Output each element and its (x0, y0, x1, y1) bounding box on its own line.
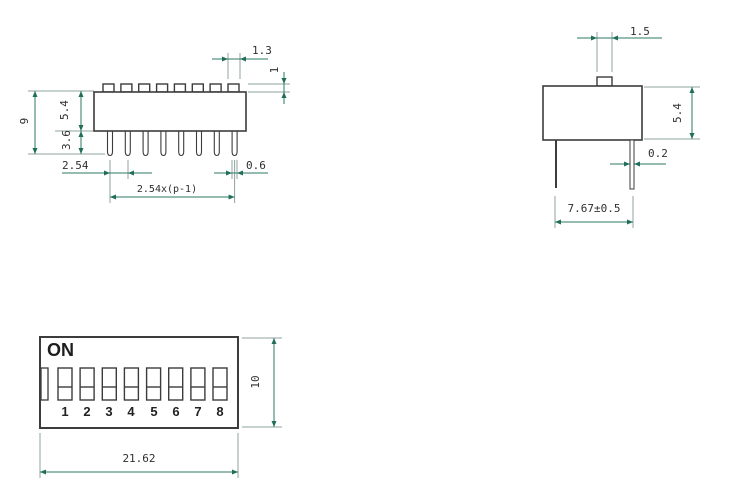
dim-end-body-height: 5.4 (672, 96, 684, 130)
dim-pin-width: 0.6 (246, 160, 266, 172)
switch-number-2: 2 (79, 404, 95, 419)
dim-top-length: 21.62 (109, 453, 169, 465)
switch-number-5: 5 (146, 404, 162, 419)
dim-pin-pitch: 2.54 (62, 160, 89, 172)
dim-end-pin-thickness: 0.2 (648, 148, 668, 160)
drawing-linework (0, 0, 750, 498)
side-view-outline (94, 84, 246, 156)
dim-top-width: 10 (250, 365, 262, 399)
dim-end-row-spacing: 7.67±0.5 (552, 203, 636, 215)
end-actuator (597, 77, 612, 86)
end-view-outline (543, 77, 642, 189)
switch-number-6: 6 (168, 404, 184, 419)
dim-body-height: 5.4 (59, 93, 71, 127)
dim-pin-length: 3.6 (61, 123, 73, 157)
top-edge-sliver (41, 368, 48, 400)
switch-number-8: 8 (212, 404, 228, 419)
end-pin-right (630, 140, 634, 189)
switch-number-7: 7 (190, 404, 206, 419)
dip-switch-technical-drawing: 1.3 1 9 5.4 3.6 2.54 2.54x(p-1) 0.6 1.5 … (0, 0, 750, 498)
dim-end-actuator-width: 1.5 (630, 26, 650, 38)
side-actuator (103, 84, 114, 92)
switch-number-4: 4 (123, 404, 139, 419)
dim-actuator-height: 1 (269, 53, 281, 87)
side-pins (108, 131, 238, 156)
dim-overall-height: 9 (19, 104, 31, 138)
on-label: ON (47, 341, 74, 359)
switch-number-1: 1 (57, 404, 73, 419)
side-body (94, 92, 246, 131)
dim-pin-span: 2.54x(p-1) (127, 184, 207, 196)
end-body (543, 86, 642, 140)
switch-number-3: 3 (101, 404, 117, 419)
